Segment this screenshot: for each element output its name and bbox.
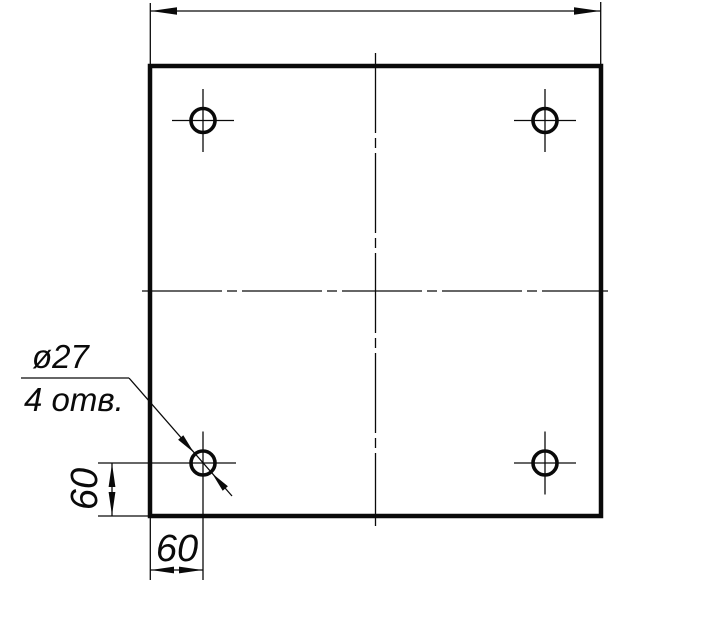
hole-top-right xyxy=(514,89,576,152)
leader-note: ø27 4 отв. xyxy=(21,338,232,496)
leader-note-count: 4 отв. xyxy=(24,381,124,418)
dimension-left-offset: 60 xyxy=(64,463,148,516)
dimension-bottom-offset: 60 xyxy=(150,518,203,580)
dimension-left-value: 60 xyxy=(64,468,106,510)
dimension-left-arrow-top xyxy=(109,464,116,487)
hole-bottom-right xyxy=(514,432,576,495)
leader-note-diameter: ø27 xyxy=(32,338,91,375)
dimension-left-arrow-bottom xyxy=(109,492,116,515)
leader-arrow-lower xyxy=(212,473,228,490)
dimension-top-arrow-left xyxy=(151,7,177,15)
technical-drawing-canvas: 60 60 ø27 4 отв. xyxy=(0,0,713,631)
hole-top-left xyxy=(172,89,234,152)
dimension-top-arrow-right xyxy=(574,7,600,15)
leader-arrow-upper xyxy=(178,435,194,452)
dimension-bottom-value: 60 xyxy=(156,528,198,570)
drawing-sheet: 60 60 ø27 4 отв. xyxy=(0,0,713,631)
